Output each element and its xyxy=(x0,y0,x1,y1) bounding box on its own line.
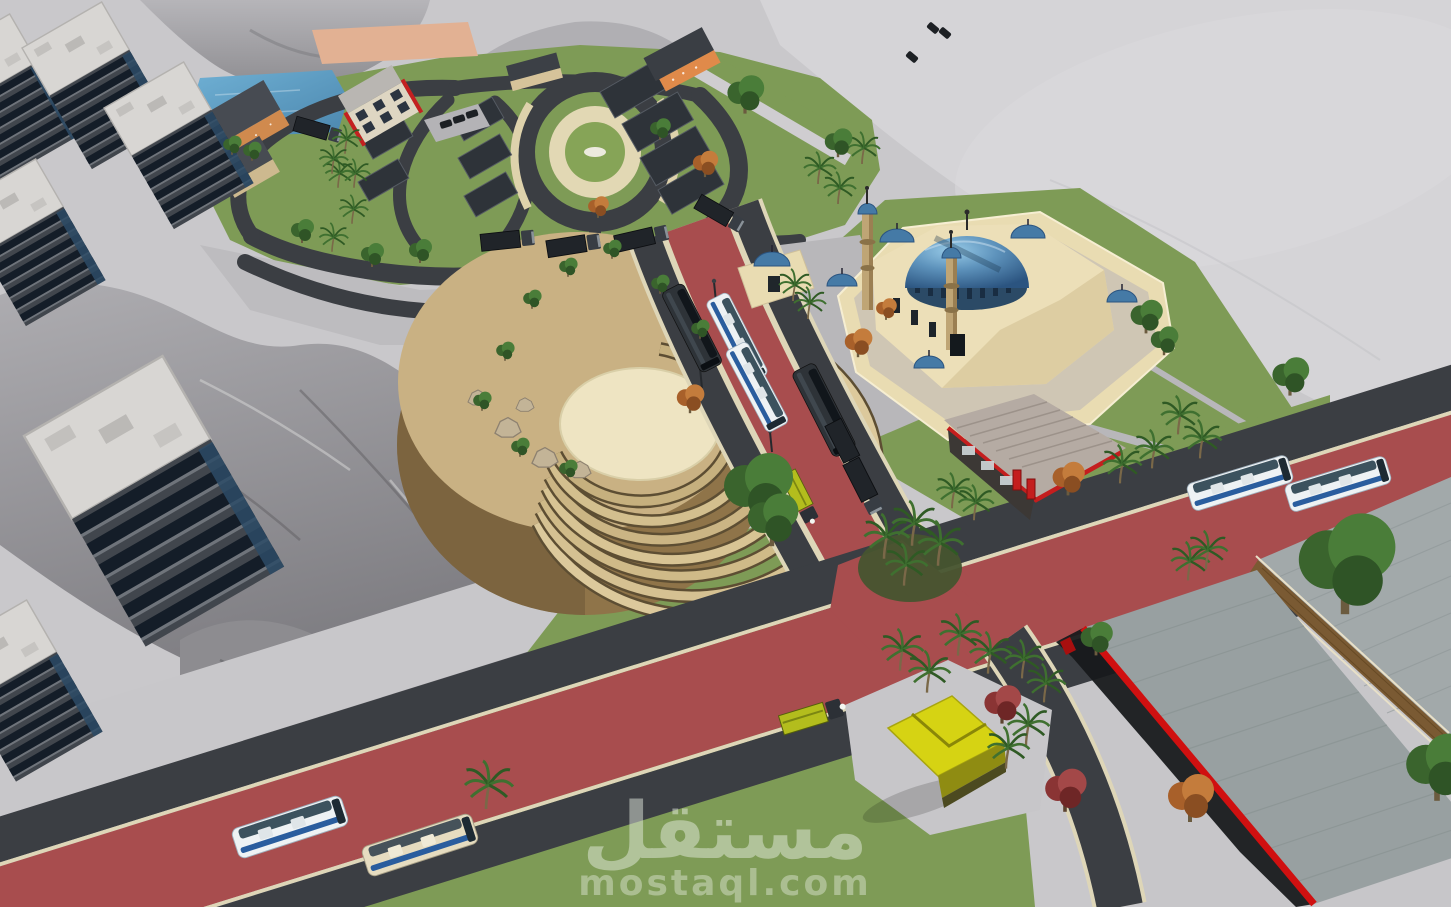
chimney xyxy=(1013,470,1021,490)
dome-finial xyxy=(965,210,970,215)
door xyxy=(950,334,965,356)
window xyxy=(929,322,936,337)
masterplan-render: مستقل mostaql.com xyxy=(0,0,1451,907)
watermark: مستقل mostaql.com xyxy=(578,787,872,904)
watermark-site: mostaql.com xyxy=(578,863,872,904)
plaza-monument xyxy=(584,147,606,157)
chimney xyxy=(1027,479,1035,499)
window xyxy=(911,310,918,325)
render-viewport: مستقل mostaql.com xyxy=(0,0,1451,907)
